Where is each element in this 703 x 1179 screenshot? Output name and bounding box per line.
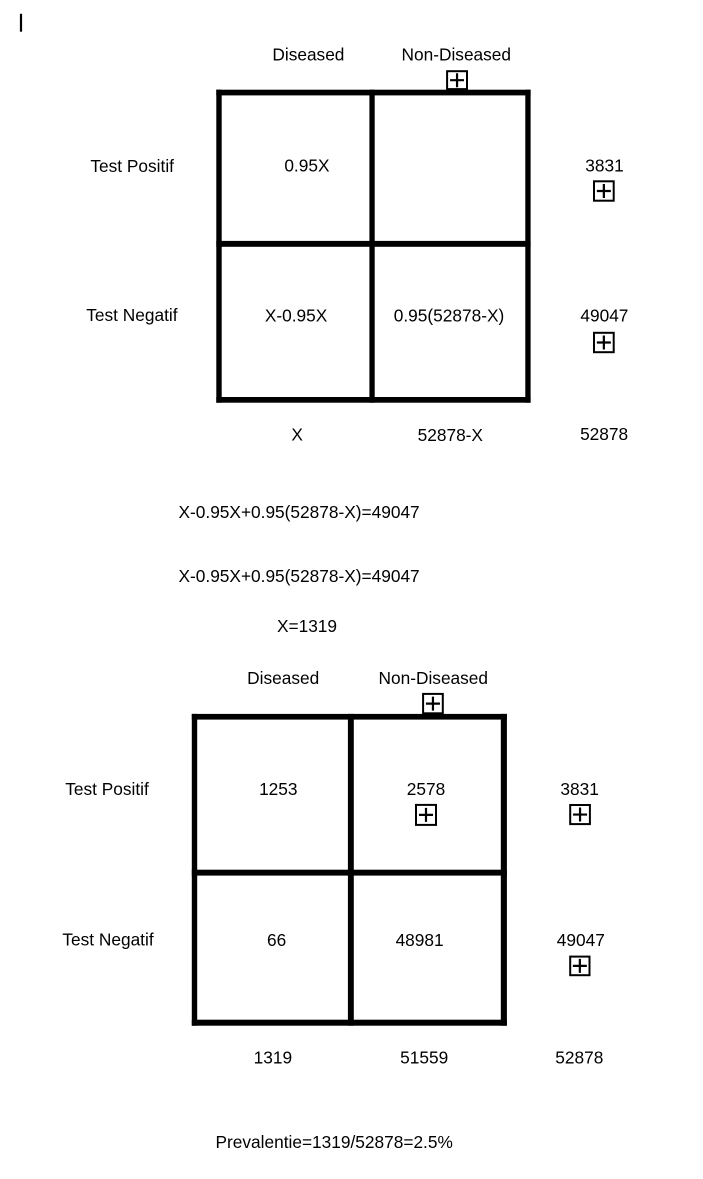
svg-text:X=1319: X=1319	[277, 616, 337, 636]
svg-text:X-0.95X+0.95(52878-X)=49047: X-0.95X+0.95(52878-X)=49047	[179, 502, 420, 522]
svg-text:52878: 52878	[555, 1047, 603, 1067]
svg-text:51559: 51559	[400, 1047, 448, 1067]
svg-text:X-0.95X+0.95(52878-X)=49047: X-0.95X+0.95(52878-X)=49047	[179, 566, 420, 586]
svg-text:Prevalentie=1319/52878=2.5%: Prevalentie=1319/52878=2.5%	[216, 1132, 453, 1152]
svg-text:52878: 52878	[580, 424, 628, 444]
svg-text:Test Positif: Test Positif	[90, 156, 174, 176]
svg-text:1319: 1319	[254, 1048, 292, 1068]
svg-text:2578: 2578	[407, 779, 445, 799]
svg-text:52878-X: 52878-X	[418, 425, 484, 445]
svg-text:0.95X: 0.95X	[284, 156, 330, 176]
svg-text:Test Negatif: Test Negatif	[62, 930, 153, 950]
svg-text:Diseased: Diseased	[247, 668, 319, 688]
svg-text:0.95(52878-X): 0.95(52878-X)	[394, 306, 504, 326]
svg-text:Non-Diseased: Non-Diseased	[402, 44, 512, 64]
svg-text:X: X	[291, 425, 303, 445]
svg-text:Test Negatif: Test Negatif	[86, 305, 177, 325]
svg-text:49047: 49047	[580, 305, 628, 325]
svg-text:Test Positif: Test Positif	[65, 779, 149, 799]
svg-text:3831: 3831	[585, 155, 623, 175]
svg-text:48981: 48981	[396, 930, 444, 950]
svg-text:Diseased: Diseased	[272, 44, 344, 64]
svg-text:X-0.95X: X-0.95X	[265, 305, 328, 325]
svg-text:66: 66	[267, 930, 286, 950]
svg-text:3831: 3831	[560, 779, 598, 799]
svg-text:49047: 49047	[557, 930, 605, 950]
svg-text:1253: 1253	[259, 779, 297, 799]
svg-text:Non-Diseased: Non-Diseased	[379, 668, 489, 688]
